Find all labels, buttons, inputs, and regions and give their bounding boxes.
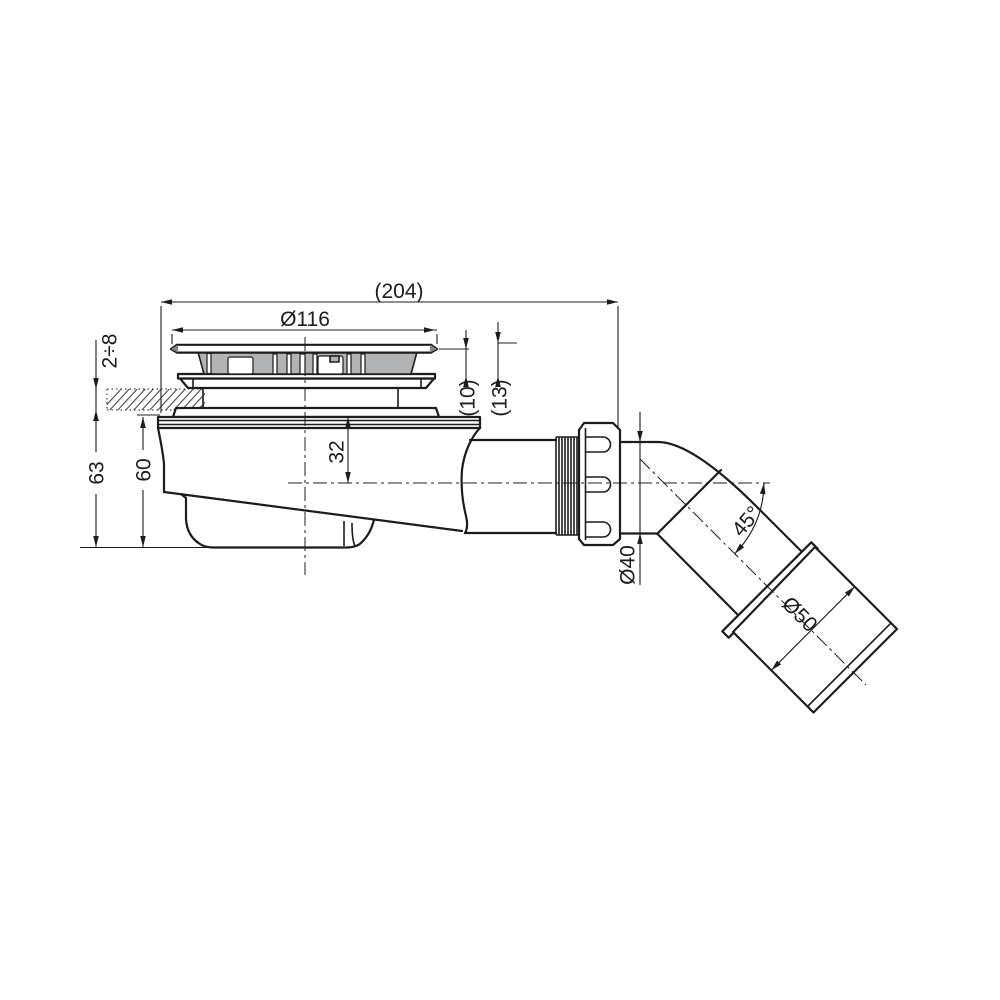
flange-cone <box>178 374 435 388</box>
dim-flange-height-total: (13) <box>488 322 517 417</box>
dim-label-flange-height-total: (13) <box>488 379 511 416</box>
drain-neck <box>203 388 398 408</box>
body-flange <box>158 417 480 428</box>
dim-flange-height: (10) <box>439 330 479 417</box>
outlet-thread <box>556 437 579 535</box>
dim-label-flange-height: (10) <box>456 379 479 416</box>
dim-label-height-total: 63 <box>85 461 108 484</box>
dim-label-outlet-diameter: Ø40 <box>616 545 639 585</box>
grate <box>198 352 417 374</box>
dim-label-tile-range: 2÷8 <box>98 334 121 369</box>
trap-body <box>158 428 556 548</box>
clamping-ring <box>173 408 439 417</box>
dim-label-grate-diameter: Ø116 <box>280 308 330 331</box>
outlet-socket <box>733 547 897 713</box>
page: (204) Ø116 2÷8 63 60 32 <box>0 0 1000 1000</box>
dim-height-body: 60 <box>132 415 160 547</box>
locknut <box>579 423 620 545</box>
cover-plate <box>171 345 437 353</box>
dim-outlet-angle: 45° <box>728 483 767 556</box>
dim-height-total: 63 <box>85 410 108 547</box>
technical-drawing: (204) Ø116 2÷8 63 60 32 <box>0 0 1000 1000</box>
dim-label-axis-depth: 32 <box>325 440 348 463</box>
dim-label-outlet-angle: 45° <box>728 502 766 541</box>
dim-label-height-body: 60 <box>132 458 155 481</box>
dim-label-overall-width: (204) <box>374 280 423 303</box>
